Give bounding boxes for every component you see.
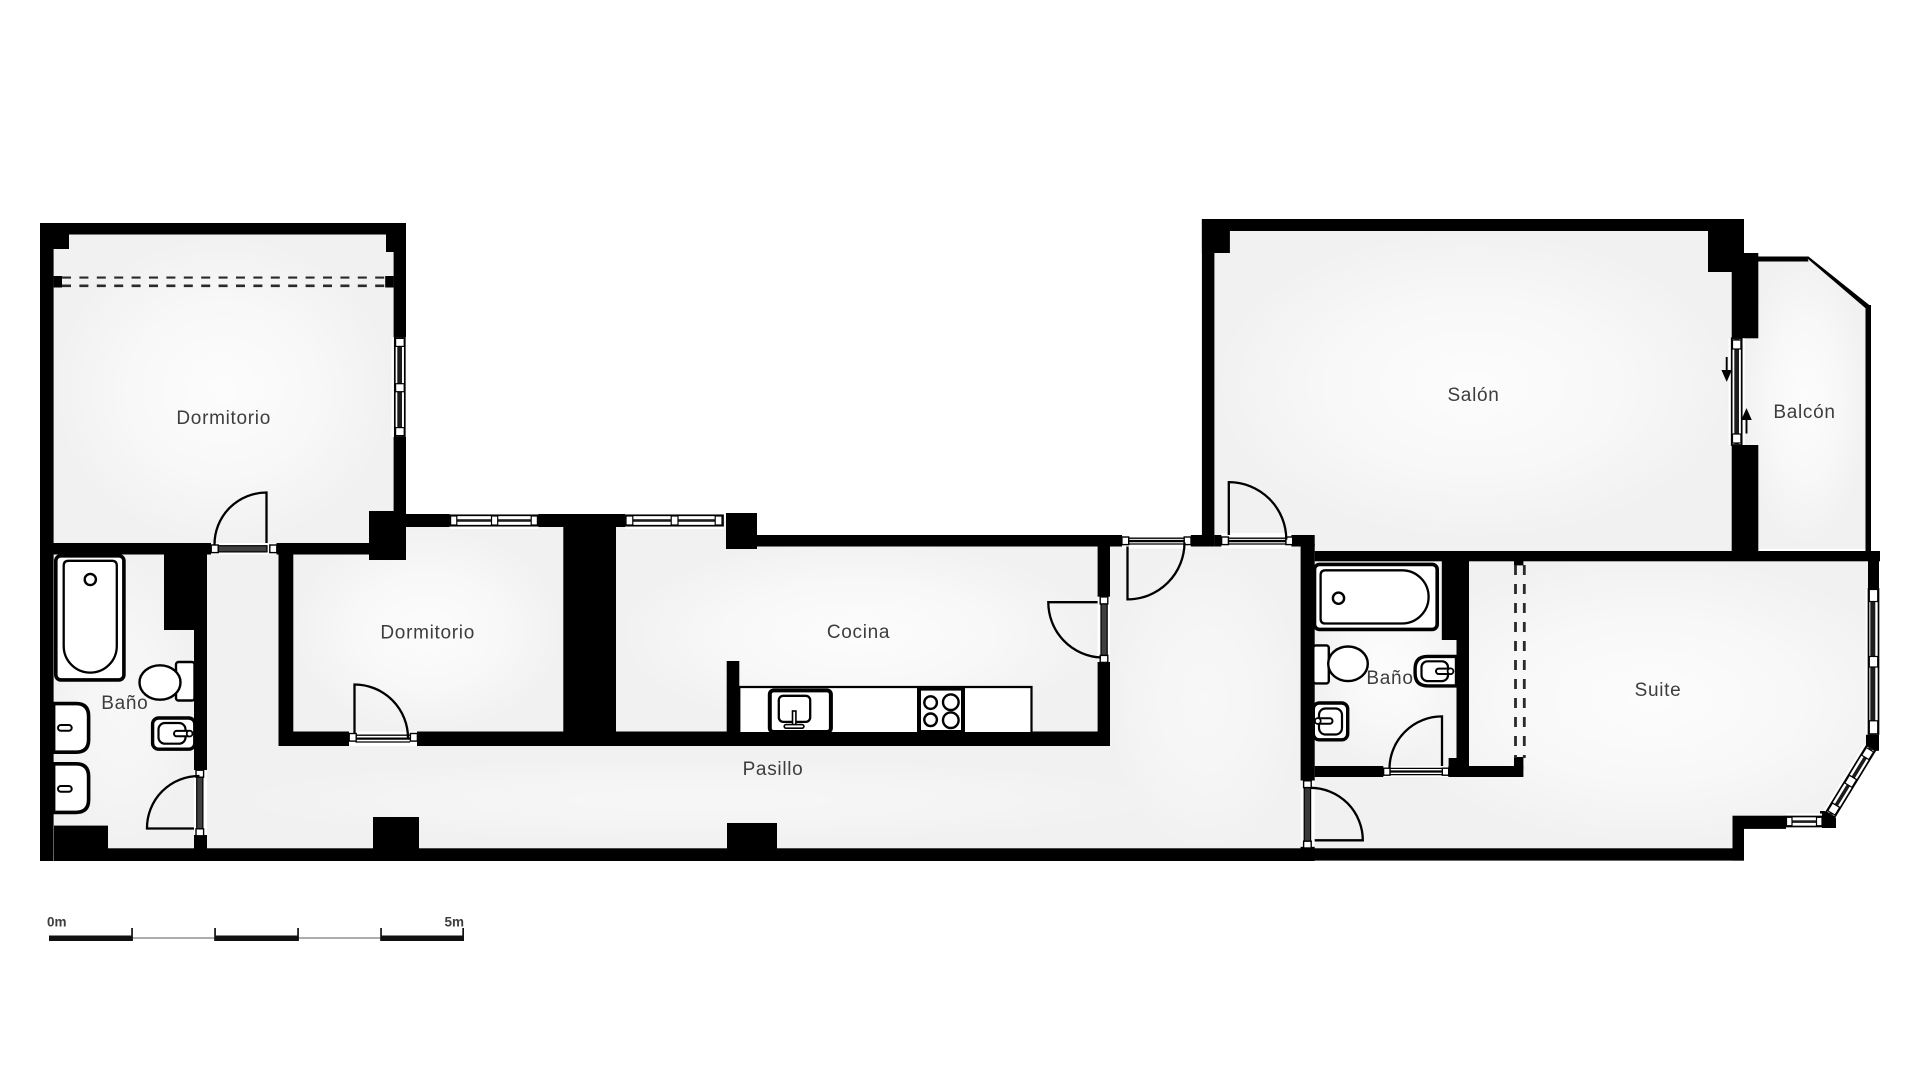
svg-text:5m: 5m (444, 915, 464, 930)
svg-text:Dormitorio: Dormitorio (380, 622, 475, 643)
svg-text:Dormitorio: Dormitorio (176, 408, 271, 429)
svg-text:Salón: Salón (1447, 385, 1499, 406)
svg-text:Baño: Baño (1366, 668, 1413, 689)
svg-text:Cocina: Cocina (827, 622, 890, 643)
svg-text:Baño: Baño (101, 693, 148, 714)
svg-text:0m: 0m (47, 915, 67, 930)
svg-text:Suite: Suite (1635, 680, 1682, 701)
svg-text:Pasillo: Pasillo (743, 759, 804, 780)
svg-text:Balcón: Balcón (1773, 402, 1835, 423)
